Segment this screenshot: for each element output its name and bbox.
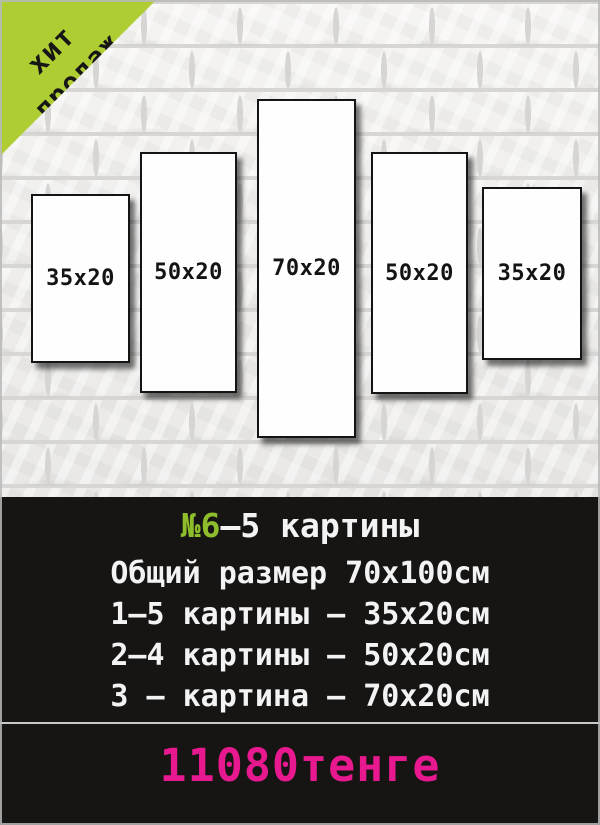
set-title: №6–5 картины: [0, 507, 600, 545]
brick-wall: хит продаж 35x20 50x20 70x20 50x20 35x20: [0, 0, 600, 497]
set-number: №6: [181, 506, 221, 545]
info-line-panels-1-5: 1–5 картины – 35x20см: [0, 594, 600, 635]
panel-5: 35x20: [482, 187, 582, 360]
product-card: хит продаж 35x20 50x20 70x20 50x20 35x20…: [0, 0, 600, 825]
info-line-total-size: Общий размер 70x100см: [0, 553, 600, 594]
set-title-rest: –5 картины: [221, 506, 420, 545]
info-section: №6–5 картины Общий размер 70x100см 1–5 к…: [0, 497, 600, 825]
bestseller-ribbon: хит продаж: [0, 0, 156, 156]
divider-line: [0, 722, 600, 724]
panel-4-size-label: 50x20: [385, 261, 454, 286]
info-line-panel-3: 3 – картина – 70x20см: [0, 676, 600, 717]
panel-5-size-label: 35x20: [498, 261, 567, 286]
price: 11080тенге: [0, 738, 600, 794]
panel-3: 70x20: [257, 99, 356, 438]
panel-4: 50x20: [371, 152, 468, 394]
panel-1-size-label: 35x20: [46, 266, 115, 291]
bestseller-ribbon-text: хит продаж: [0, 0, 168, 167]
panel-2: 50x20: [140, 152, 237, 393]
panel-3-size-label: 70x20: [272, 256, 341, 281]
panel-1: 35x20: [31, 194, 130, 363]
info-line-panels-2-4: 2–4 картины – 50x20см: [0, 635, 600, 676]
panel-2-size-label: 50x20: [154, 260, 223, 285]
